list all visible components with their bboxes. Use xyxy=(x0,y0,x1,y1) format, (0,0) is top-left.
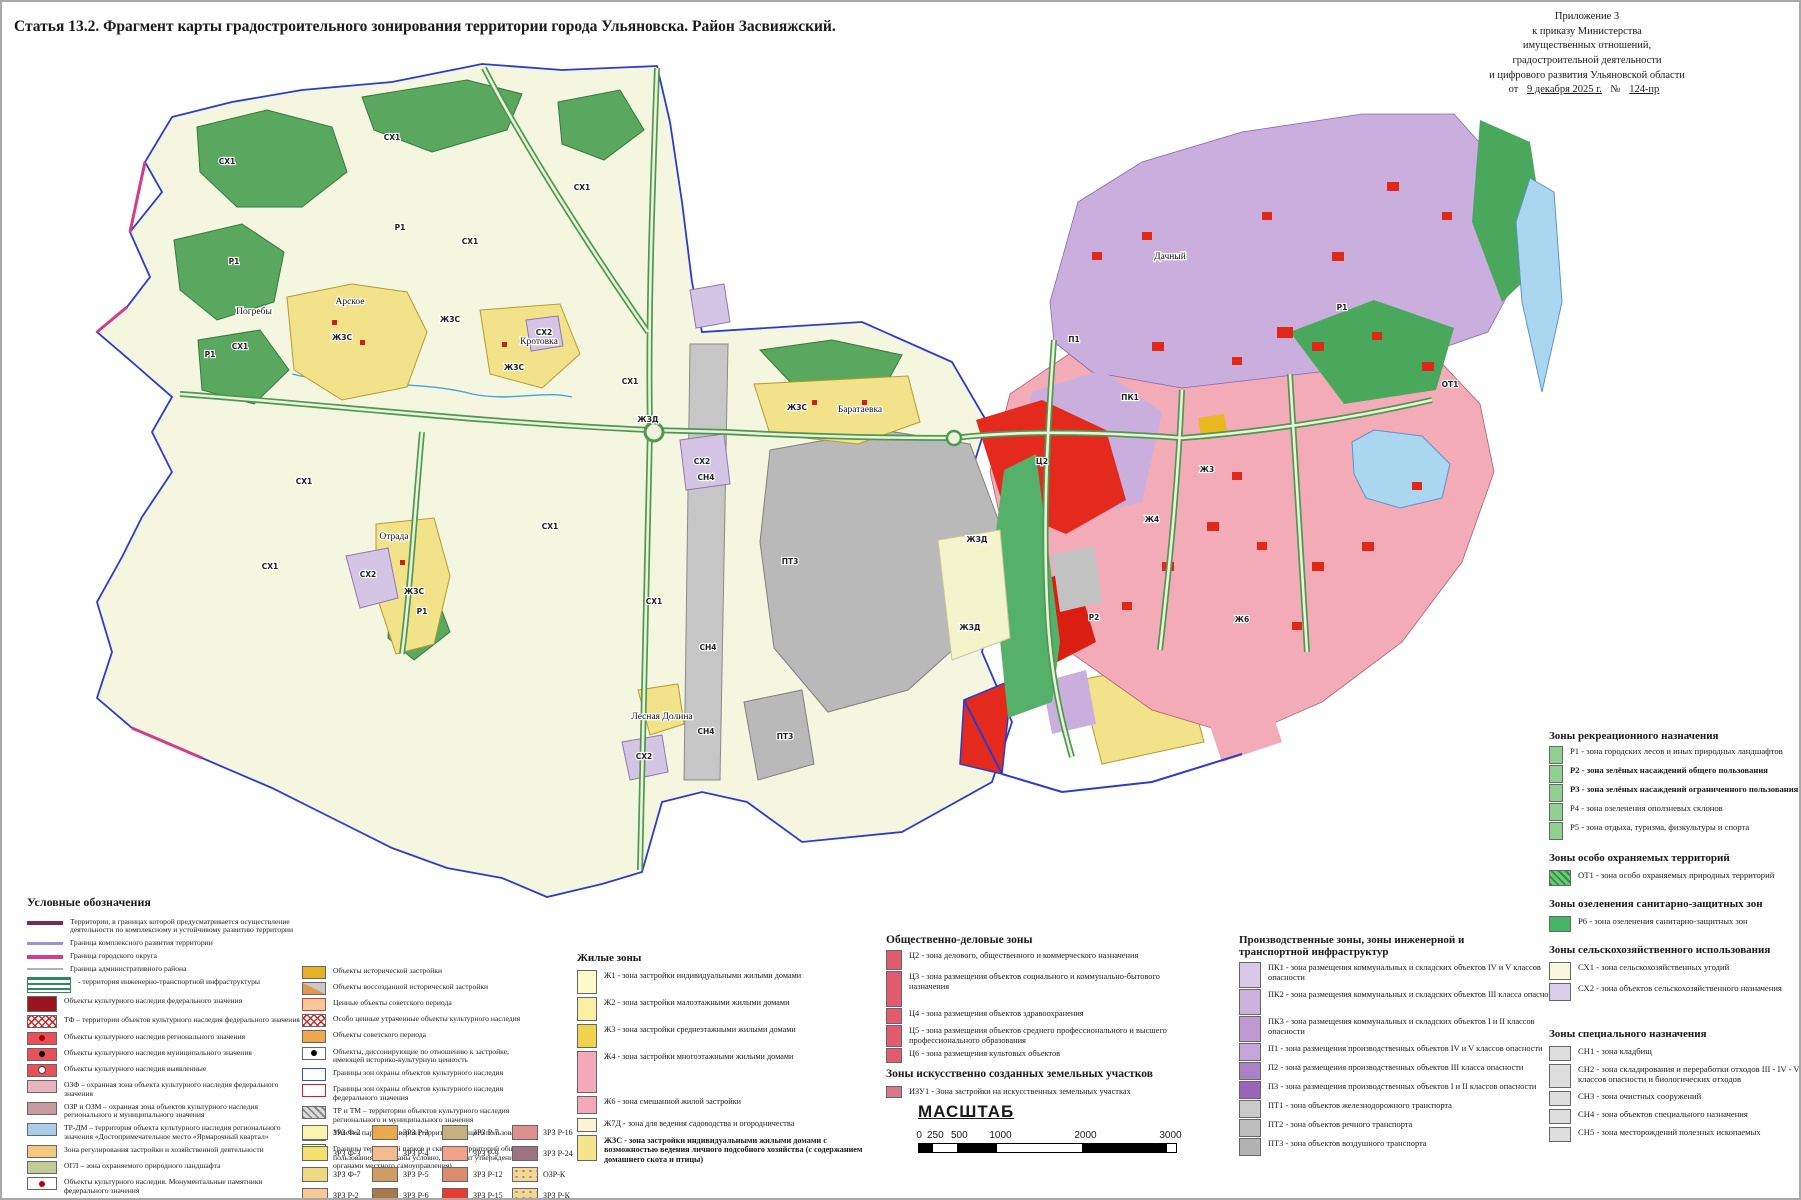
legend-item-label: ПК2 - зона размещения коммунальных и скл… xyxy=(1268,989,1565,1000)
legend-item: Ценные объекты советского периода xyxy=(302,998,540,1011)
legend-item: Ц3 - зона размещения объектов социальног… xyxy=(886,971,1188,1007)
legend-swatch xyxy=(1549,962,1571,980)
legend-swatch xyxy=(577,1096,597,1114)
svg-text:ЖЗС: ЖЗС xyxy=(440,315,461,324)
legend-swatch xyxy=(302,1047,326,1060)
legend-item-label: СН5 - зона месторождений полезных ископа… xyxy=(1578,1127,1801,1138)
legend-item-label: Р1 - зона городских лесов и иных природн… xyxy=(1570,746,1801,757)
scale-tick: 0 xyxy=(916,1130,922,1141)
legend-item: Объекты культурного наследия федеральног… xyxy=(27,996,305,1012)
legend-swatch xyxy=(886,1048,902,1063)
scale-tick: 250 xyxy=(927,1130,944,1141)
svg-text:ЖЗД: ЖЗД xyxy=(966,535,988,544)
svg-text:СН4: СН4 xyxy=(698,473,715,482)
svg-text:Р2: Р2 xyxy=(1089,613,1100,622)
legend-item: Объекты культурного наследия регионально… xyxy=(27,1032,305,1045)
legend-item: Граница комплексного развития территории xyxy=(27,938,305,948)
legend-item-label: Р6 - зона озеленения санитарно-защитных … xyxy=(1578,916,1801,927)
zrz-item: ЗРЗ Р-6 xyxy=(372,1185,438,1200)
legend-item-label: ТР-ДМ – территория объекта культурного н… xyxy=(64,1123,305,1141)
legend-recreation: Зоны рекреационного назначения Р1 - зона… xyxy=(1549,730,1801,841)
legend-item: Ц4 - зона размещения объектов здравоохра… xyxy=(886,1008,1188,1024)
zrz-swatch xyxy=(372,1188,398,1200)
svg-text:СХ1: СХ1 xyxy=(646,597,663,606)
legend-item-label: ОЗФ – охранная зона объекта культурного … xyxy=(64,1080,305,1098)
legend-item: П3 - зона размещения производственных об… xyxy=(1239,1081,1565,1099)
legend-swatch xyxy=(302,998,326,1011)
svg-text:СН4: СН4 xyxy=(700,643,717,652)
legend-item: СН3 - зона очистных сооружений xyxy=(1549,1091,1801,1106)
legend-item-label: Ж6 - зона смешанной жилой застройки xyxy=(604,1096,867,1106)
svg-text:ЖЗС: ЖЗС xyxy=(504,363,525,372)
legend-swatch xyxy=(1239,1081,1261,1099)
legend-residential: Жилые зоны Ж1 - зона застройки индивидуа… xyxy=(577,952,867,1166)
legend-item: Ц6 - зона размещения культовых объектов xyxy=(886,1048,1188,1063)
svg-text:Баратаевка: Баратаевка xyxy=(838,405,883,415)
zrz-item: ЗРЗ Р-5 xyxy=(372,1164,438,1185)
legend-item: ИЗУ1 - Зона застройки на искусственных з… xyxy=(886,1086,1188,1098)
zrz-code: ЗРЗ Р-7 xyxy=(473,1128,499,1137)
svg-text:ЖЗС: ЖЗС xyxy=(787,403,808,412)
legend-swatch xyxy=(27,1015,57,1028)
zrz-item: ЗРЗ Р-24 xyxy=(512,1143,578,1164)
legend-swatch xyxy=(27,1161,57,1174)
zrz-code: ЗРЗ Р-3 xyxy=(403,1128,429,1137)
svg-text:Р1: Р1 xyxy=(417,607,428,616)
scale-ticks: 0250500100020003000 xyxy=(918,1130,1198,1143)
legend-item-label: Ц3 - зона размещения объектов социальног… xyxy=(909,971,1188,991)
zrz-swatch xyxy=(302,1167,328,1182)
zrz-code: ЗРЗ Р-12 xyxy=(473,1170,503,1179)
legend-heading: Жилые зоны xyxy=(577,952,867,964)
legend-item: Ц2 - зона делового, общественного и комм… xyxy=(886,950,1188,970)
zrz-swatch xyxy=(512,1167,538,1182)
legend-item-label: Р4 - зона озеленения оползневых склонов xyxy=(1570,803,1801,814)
legend-heading: Условные обозначения xyxy=(27,895,305,910)
legend-swatch xyxy=(577,1051,597,1093)
legend-swatch xyxy=(302,1106,326,1119)
legend-item-label: Границы зон охраны объектов культурного … xyxy=(333,1068,540,1078)
legend-swatch xyxy=(886,1008,902,1024)
annex-date-line: от 9 декабря 2025 г. № 124-пр xyxy=(1387,83,1787,98)
legend-item-label: Территории, в границах которой предусмат… xyxy=(70,917,305,935)
legend-swatch xyxy=(27,996,57,1012)
zrz-item: ЗРЗ Ф-7 xyxy=(302,1164,368,1185)
legend-sanitary: Зоны озеленения санитарно-защитных зон Р… xyxy=(1549,898,1801,933)
legend-item: П2 - зона размещения производственных об… xyxy=(1239,1062,1565,1080)
legend-heading: Зоны особо охраняемых территорий xyxy=(1549,852,1801,864)
legend-item: ПТ2 - зона объектов речного транспорта xyxy=(1239,1119,1565,1137)
legend-item: Ц5 - зона размещения объектов среднего п… xyxy=(886,1025,1188,1047)
legend-item: Ж1 - зона застройки индивидуальными жилы… xyxy=(577,970,867,994)
scale-tick: 1000 xyxy=(989,1130,1011,1141)
legend-item: ОГЛ – зона охраняемого природного ландша… xyxy=(27,1161,305,1174)
legend-swatch xyxy=(1239,1016,1261,1042)
svg-text:ЖЗС: ЖЗС xyxy=(332,333,353,342)
legend-special: Зоны специального назначения СН1 - зона … xyxy=(1549,1028,1801,1144)
legend-item: ОЗФ – охранная зона объекта культурного … xyxy=(27,1080,305,1098)
legend-item-label: СХ2 - зона объектов сельскохозяйственног… xyxy=(1578,983,1801,994)
zrz-code: ЗРЗ Р-5 xyxy=(403,1170,429,1179)
svg-text:Лесная Долина: Лесная Долина xyxy=(631,712,693,722)
zrz-code: ЗРЗ Р-6 xyxy=(403,1191,429,1200)
legend-swatch xyxy=(886,1025,902,1047)
legend-item-label: ПК1 - зона размещения коммунальных и скл… xyxy=(1268,962,1565,982)
legend-swatch xyxy=(1239,1138,1261,1156)
legend-item-label: ОГЛ – зона охраняемого природного ландша… xyxy=(64,1161,305,1171)
zrz-code: ЗРЗ Р-4 xyxy=(403,1149,429,1158)
legend-swatch xyxy=(577,1135,597,1161)
zrz-code: ЗРЗ Ф-7 xyxy=(333,1170,361,1179)
svg-text:СХ1: СХ1 xyxy=(232,342,249,351)
legend-item: ОЗР и ОЗМ – охранная зона объектов культ… xyxy=(27,1102,305,1120)
legend-swatch xyxy=(27,977,71,993)
legend-item-label: Объекты культурного наследия выявленные xyxy=(64,1064,305,1074)
annex-from: от xyxy=(1509,84,1519,95)
legend-swatch xyxy=(302,1014,326,1027)
legend-swatch xyxy=(1239,989,1261,1015)
zrz-swatch xyxy=(302,1146,328,1161)
legend-swatch xyxy=(27,942,63,945)
legend-item-label: СН1 - зона кладбищ xyxy=(1578,1046,1801,1057)
zrz-swatch xyxy=(512,1146,538,1161)
zoning-map-page: СХ1СХ1СХ1СХ1СХ1СХ1СХ1СХ1СХ1СХ1Р1Р1Р1Р1ЖЗ… xyxy=(0,0,1801,1200)
legend-swatch xyxy=(27,1177,57,1190)
legend-item-label: П3 - зона размещения производственных об… xyxy=(1268,1081,1565,1092)
zrz-code: ЗРЗ Ф-2 xyxy=(333,1128,361,1137)
legend-swatch xyxy=(27,1064,57,1077)
legend-heading: Зоны рекреационного назначения xyxy=(1549,730,1801,742)
svg-text:П1: П1 xyxy=(1068,335,1080,344)
legend-swatch xyxy=(1549,784,1563,802)
zrz-item: ЗРЗ Р-15 xyxy=(442,1185,508,1200)
legend-item-label: ПТ1 - зона объектов железнодорожного тра… xyxy=(1268,1100,1565,1111)
svg-text:Р1: Р1 xyxy=(1337,303,1348,312)
svg-text:СХ1: СХ1 xyxy=(462,237,479,246)
annex-line: к приказу Министерства xyxy=(1387,25,1787,40)
legend-item: Объекты культурного наследия. Монументал… xyxy=(27,1177,305,1195)
legend-item: Объекты исторической застройки xyxy=(302,966,540,979)
svg-text:ЖЗД: ЖЗД xyxy=(959,623,981,632)
legend-item-label: Объекты культурного наследия муниципальн… xyxy=(64,1048,305,1058)
legend-item: СН4 - зона объектов специального назначе… xyxy=(1549,1109,1801,1124)
zrz-code: ЗРЗ Р-15 xyxy=(473,1191,503,1200)
legend-item: Объекты советского периода xyxy=(302,1030,540,1043)
zrz-swatch xyxy=(442,1167,468,1182)
legend-item-label: ТФ – территории объектов культурного нас… xyxy=(64,1015,305,1025)
legend-item-label: П2 - зона размещения производственных об… xyxy=(1268,1062,1565,1073)
svg-text:СХ1: СХ1 xyxy=(574,183,591,192)
legend-item-label: ОТ1 - зона особо охраняемых природных те… xyxy=(1578,870,1801,881)
legend-item: СХ1 - зона сельскохозяйственных угодий xyxy=(1549,962,1801,980)
legend-item-label: Ц4 - зона размещения объектов здравоохра… xyxy=(909,1008,1188,1019)
legend-item: - территория инженерно-транспортной инфр… xyxy=(27,977,305,993)
legend-swatch xyxy=(577,1024,597,1048)
legend-swatch xyxy=(577,997,597,1021)
legend-item-label: Р5 - зона отдыха, туризма, физкультуры и… xyxy=(1570,822,1801,833)
zrz-swatch xyxy=(512,1125,538,1140)
annex-line: градостроительной деятельности xyxy=(1387,54,1787,69)
legend-item-label: Объекты советского периода xyxy=(333,1030,540,1040)
legend-swatch xyxy=(1549,765,1563,783)
legend-item: Р2 - зона зелёных насаждений общего поль… xyxy=(1549,765,1801,783)
svg-text:СХ1: СХ1 xyxy=(219,157,236,166)
svg-text:Арское: Арское xyxy=(335,297,364,307)
legend-item-label: Объекты культурного наследия федеральног… xyxy=(64,996,305,1006)
svg-text:СХ2: СХ2 xyxy=(694,457,711,466)
legend-swatch xyxy=(27,968,63,970)
legend-swatch xyxy=(302,1068,326,1081)
annex-note: Приложение 3 к приказу Министерства имущ… xyxy=(1387,10,1787,98)
legend-swatch xyxy=(1549,1046,1571,1061)
svg-text:СХ1: СХ1 xyxy=(622,377,639,386)
legend-item: Р5 - зона отдыха, туризма, физкультуры и… xyxy=(1549,822,1801,840)
legend-item-label: ЖЗС - зона застройки индивидуальными жил… xyxy=(604,1135,867,1164)
svg-text:Отрада: Отрада xyxy=(379,532,409,542)
zrz-item: ЗРЗ Ф-3 xyxy=(302,1143,368,1164)
legend-item-label: Ценные объекты советского периода xyxy=(333,998,540,1008)
legend-item-label: П1 - зона размещения производственных об… xyxy=(1268,1043,1565,1054)
svg-text:Ж3: Ж3 xyxy=(1200,465,1214,474)
legend-item: ЖЗС - зона застройки индивидуальными жил… xyxy=(577,1135,867,1164)
legend-item: Ж6 - зона смешанной жилой застройки xyxy=(577,1096,867,1114)
scale-bar-segments xyxy=(918,1143,1177,1153)
legend-item: Границы зон охраны объектов культурного … xyxy=(302,1068,540,1081)
legend-item-label: Граница городского округа xyxy=(70,951,305,961)
svg-text:СХ2: СХ2 xyxy=(536,328,553,337)
zrz-swatch xyxy=(302,1125,328,1140)
zrz-code: ЗРЗ Ф-3 xyxy=(333,1149,361,1158)
legend-swatch xyxy=(27,1123,57,1136)
legend-swatch xyxy=(1549,1064,1571,1088)
urban-area xyxy=(938,114,1562,792)
svg-text:Кротовка: Кротовка xyxy=(520,337,558,347)
legend-item-label: СН3 - зона очистных сооружений xyxy=(1578,1091,1801,1102)
zrz-item: ЗРЗ Р-16 xyxy=(512,1122,578,1143)
road-junction xyxy=(645,423,663,441)
svg-text:СН4: СН4 xyxy=(698,727,715,736)
legend-item-label: Объекты культурного наследия регионально… xyxy=(64,1032,305,1042)
legend-item-label: ОЗР и ОЗМ – охранная зона объектов культ… xyxy=(64,1102,305,1120)
legend-swatch xyxy=(1549,822,1563,840)
legend-production: Производственные зоны, зоны инженерной и… xyxy=(1239,934,1565,1157)
legend-item: Ж3 - зона застройки среднеэтажными жилым… xyxy=(577,1024,867,1048)
zrz-swatch xyxy=(442,1188,468,1200)
legend-swatch xyxy=(1239,1119,1261,1137)
legend-swatch xyxy=(886,1086,902,1098)
zrz-swatch xyxy=(372,1125,398,1140)
legend-swatch xyxy=(302,1030,326,1043)
svg-text:Ц2: Ц2 xyxy=(1036,457,1048,466)
legend-item: П1 - зона размещения производственных об… xyxy=(1239,1043,1565,1061)
legend-swatch xyxy=(302,982,326,995)
svg-text:Ж6: Ж6 xyxy=(1235,615,1249,624)
legend-item: Объекты культурного наследия выявленные xyxy=(27,1064,305,1077)
annex-no: № xyxy=(1611,84,1621,95)
legend-swatch xyxy=(27,1102,57,1115)
legend-item: СН2 - зона складирования и переработки о… xyxy=(1549,1064,1801,1088)
legend-protected: Зоны особо охраняемых территорий ОТ1 - з… xyxy=(1549,852,1801,887)
road-junction xyxy=(947,431,961,445)
legend-item-label: - территория инженерно-транспортной инфр… xyxy=(78,977,305,987)
legend-item: СН1 - зона кладбищ xyxy=(1549,1046,1801,1061)
zrz-swatch xyxy=(372,1167,398,1182)
legend-item: Зона регулирования застройки и хозяйстве… xyxy=(27,1145,305,1158)
svg-text:Р1: Р1 xyxy=(395,223,406,232)
legend-swatch xyxy=(1549,1109,1571,1124)
svg-text:ПК1: ПК1 xyxy=(1121,393,1139,402)
legend-swatch xyxy=(886,950,902,970)
svg-text:ЖЗС: ЖЗС xyxy=(404,587,425,596)
scale-tick: 2000 xyxy=(1074,1130,1096,1141)
legend-item-label: Ц6 - зона размещения культовых объектов xyxy=(909,1048,1188,1059)
legend-swatch xyxy=(27,921,63,925)
zrz-item: ЗРЗ Р-12 xyxy=(442,1164,508,1185)
svg-text:Ж4: Ж4 xyxy=(1145,515,1159,524)
svg-text:СХ2: СХ2 xyxy=(360,570,377,579)
legend-item-label: СН2 - зона складирования и переработки о… xyxy=(1578,1064,1801,1085)
legend-swatch xyxy=(27,1048,57,1061)
annex-line: Приложение 3 xyxy=(1387,10,1787,25)
legend-item-label: Ж7Д - зона для ведения садоводства и ого… xyxy=(604,1118,867,1128)
zrz-swatch xyxy=(372,1146,398,1161)
legend-item-label: ПТ2 - зона объектов речного транспорта xyxy=(1268,1119,1565,1130)
legend-item-label: Ж4 - зона застройки многоэтажными жилыми… xyxy=(604,1051,867,1061)
legend-swatch xyxy=(1239,1100,1261,1118)
legend-heading: Производственные зоны, зоны инженерной и… xyxy=(1239,934,1489,958)
legend-swatch xyxy=(27,1032,57,1045)
zrz-item: ЗРЗ Р-К xyxy=(512,1185,578,1200)
legend-swatch xyxy=(1239,1062,1261,1080)
legend-item-label: СХ1 - зона сельскохозяйственных угодий xyxy=(1578,962,1801,973)
svg-text:ЖЗД: ЖЗД xyxy=(637,415,659,424)
legend-item: Р3 - зона зелёных насаждений ограниченно… xyxy=(1549,784,1801,802)
legend-swatch xyxy=(1549,746,1563,764)
legend-swatch xyxy=(1549,983,1571,1001)
legend-agricultural: Зоны сельскохозяйственного использования… xyxy=(1549,944,1801,1002)
legend-item: ТР-ДМ – территория объекта культурного н… xyxy=(27,1123,305,1141)
zrz-item: ЗРЗ Р-3 xyxy=(372,1122,438,1143)
legend-item: Р6 - зона озеленения санитарно-защитных … xyxy=(1549,916,1801,932)
zrz-code: ЗРЗ Р-16 xyxy=(543,1128,573,1137)
legend-item-label: Объекты воссозданной исторической застро… xyxy=(333,982,540,992)
legend-item: ПК3 - зона размещения коммунальных и скл… xyxy=(1239,1016,1565,1042)
svg-text:Р1: Р1 xyxy=(205,350,216,359)
legend-heading: Зоны искусственно созданных земельных уч… xyxy=(886,1068,1188,1080)
legend-item-label: Границы зон охраны объектов культурного … xyxy=(333,1084,540,1102)
legend-zrz-grid: ЗРЗ Ф-2 ЗРЗ Ф-3 ЗРЗ Ф-7 ЗРЗ Р-2 ЗРЗ Р-3 … xyxy=(302,1122,578,1200)
zrz-item: ОЗР-К xyxy=(512,1164,578,1185)
legend-item-label: Объекты культурного наследия. Монументал… xyxy=(64,1177,305,1195)
legend-item: Ж4 - зона застройки многоэтажными жилыми… xyxy=(577,1051,867,1093)
legend-item: СХ2 - зона объектов сельскохозяйственног… xyxy=(1549,983,1801,1001)
legend-swatch xyxy=(1549,870,1571,886)
legend-item-label: Граница административного района xyxy=(70,964,305,974)
legend-swatch xyxy=(1239,1043,1261,1061)
legend-heading: Общественно-деловые зоны xyxy=(886,934,1188,946)
legend-heading: Зоны сельскохозяйственного использования xyxy=(1549,944,1801,956)
legend-heading: Зоны озеленения санитарно-защитных зон xyxy=(1549,898,1801,910)
legend-swatch xyxy=(886,971,902,1007)
legend-item-label: ПТ3 - зона объектов воздушного транспорт… xyxy=(1268,1138,1565,1149)
svg-text:СХ1: СХ1 xyxy=(262,562,279,571)
legend-item: Ж2 - зона застройки малоэтажными жилыми … xyxy=(577,997,867,1021)
svg-text:СХ1: СХ1 xyxy=(542,522,559,531)
legend-item: ОТ1 - зона особо охраняемых природных те… xyxy=(1549,870,1801,886)
legend-item: Особо ценные утраченные объекты культурн… xyxy=(302,1014,540,1027)
zrz-item: ЗРЗ Ф-2 xyxy=(302,1122,368,1143)
zrz-swatch xyxy=(512,1188,538,1200)
legend-business: Общественно-деловые зоны Ц2 - зона делов… xyxy=(886,934,1188,1064)
legend-item-label: СН4 - зона объектов специального назначе… xyxy=(1578,1109,1801,1120)
legend-swatch xyxy=(1239,962,1261,988)
legend-item: Объекты культурного наследия муниципальн… xyxy=(27,1048,305,1061)
zrz-swatch xyxy=(442,1125,468,1140)
legend-swatch xyxy=(27,1145,57,1158)
svg-text:Р1: Р1 xyxy=(229,257,240,266)
svg-text:СХ1: СХ1 xyxy=(296,477,313,486)
zrz-code: ЗРЗ Р-К xyxy=(543,1191,570,1200)
svg-text:ОТ1: ОТ1 xyxy=(1442,380,1459,389)
legend-item-label: Р2 - зона зелёных насаждений общего поль… xyxy=(1570,765,1801,776)
legend-swatch xyxy=(1549,1127,1571,1142)
annex-date: 9 декабря 2025 г. xyxy=(1521,84,1608,95)
legend-item-label: Ж3 - зона застройки среднеэтажными жилым… xyxy=(604,1024,867,1034)
legend-item: ТФ – территории объектов культурного нас… xyxy=(27,1015,305,1028)
legend-item-label: Р3 - зона зелёных насаждений ограниченно… xyxy=(1570,784,1801,795)
zrz-code: ЗРЗ Р-9 xyxy=(473,1149,499,1158)
legend-item-label: ИЗУ1 - Зона застройки на искусственных з… xyxy=(909,1086,1188,1097)
legend-item-label: Ц2 - зона делового, общественного и комм… xyxy=(909,950,1188,961)
legend-swatch xyxy=(27,1080,57,1093)
svg-text:ПТ3: ПТ3 xyxy=(777,732,794,741)
legend-item-label: Граница комплексного развития территории xyxy=(70,938,305,948)
zrz-item: ЗРЗ Р-7 xyxy=(442,1122,508,1143)
legend-swatch xyxy=(577,970,597,994)
legend-item-label: Зона регулирования застройки и хозяйстве… xyxy=(64,1145,305,1155)
river-edge xyxy=(1516,178,1562,392)
legend-item-label: Ж2 - зона застройки малоэтажными жилыми … xyxy=(604,997,867,1007)
zrz-item: ЗРЗ Р-4 xyxy=(372,1143,438,1164)
legend-item: Территории, в границах которой предусмат… xyxy=(27,917,305,935)
legend-item-label: Ж1 - зона застройки индивидуальными жилы… xyxy=(604,970,867,980)
legend-item: Граница городского округа xyxy=(27,951,305,961)
legend-swatch xyxy=(302,966,326,979)
svg-text:ПТ3: ПТ3 xyxy=(782,557,799,566)
legend-item: ПК2 - зона размещения коммунальных и скл… xyxy=(1239,989,1565,1015)
svg-text:СХ1: СХ1 xyxy=(384,133,401,142)
legend-item-label: Особо ценные утраченные объекты культурн… xyxy=(333,1014,540,1024)
svg-text:СХ2: СХ2 xyxy=(636,752,653,761)
svg-text:Погребы: Погребы xyxy=(236,306,272,317)
legend-swatch xyxy=(27,955,63,959)
zrz-item: ЗРЗ Р-9 xyxy=(442,1143,508,1164)
legend-swatch xyxy=(1549,803,1563,821)
scale-tick: 3000 xyxy=(1159,1130,1181,1141)
legend-swatch xyxy=(302,1084,326,1097)
legend-item: Р1 - зона городских лесов и иных природн… xyxy=(1549,746,1801,764)
scale-heading: МАСШТАБ xyxy=(918,1102,1198,1122)
svg-text:Дачный: Дачный xyxy=(1154,251,1186,262)
legend-item-label: ПК3 - зона размещения коммунальных и скл… xyxy=(1268,1016,1565,1036)
legend-item: Ж7Д - зона для ведения садоводства и ого… xyxy=(577,1118,867,1132)
legend-item: Объекты воссозданной исторической застро… xyxy=(302,982,540,995)
scale-bar: МАСШТАБ 0250500100020003000 xyxy=(918,1102,1198,1153)
legend-izu: Зоны искусственно созданных земельных уч… xyxy=(886,1068,1188,1099)
legend-item: ПТ3 - зона объектов воздушного транспорт… xyxy=(1239,1138,1565,1156)
zrz-swatch xyxy=(302,1188,328,1200)
legend-swatch xyxy=(1549,1091,1571,1106)
